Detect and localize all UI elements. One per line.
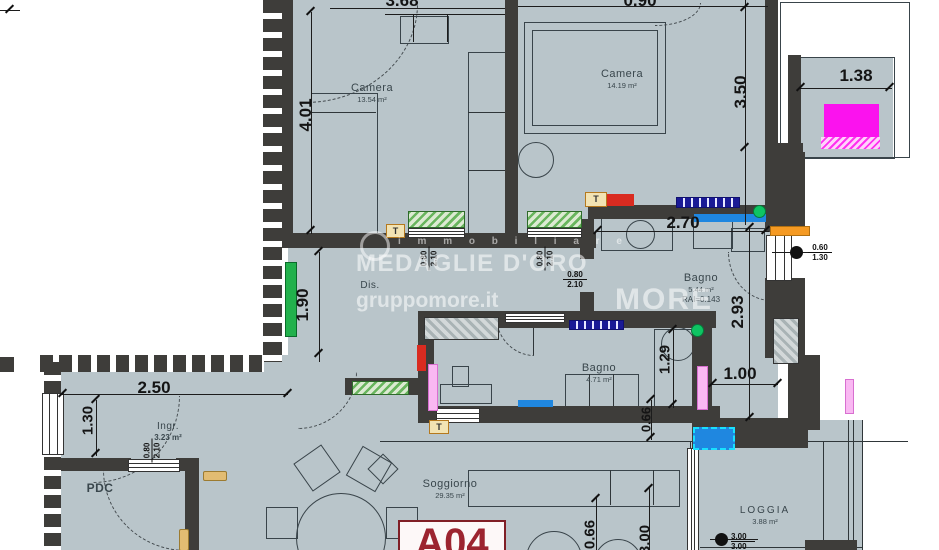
room-loggia: LOGGIA 3.88 m² — [715, 505, 815, 526]
room-ingresso: Ingr. 3.23 m² — [118, 421, 218, 442]
cyan-dashed-panel — [693, 427, 735, 450]
loggia-rail-left — [687, 448, 699, 550]
sideboard-divider2 — [653, 470, 654, 505]
dim-camera1-height: 4.01 — [296, 90, 316, 140]
dim-tick-a — [413, 14, 414, 42]
radiator-pdc — [179, 529, 189, 550]
loggia-rail-right1 — [848, 420, 849, 550]
dashed-wall-vertical — [263, 0, 282, 362]
thermostat-label: T — [593, 194, 599, 204]
dim-loggia-point: 3.00 3.00 — [731, 532, 755, 550]
sink-bagno2 — [452, 366, 469, 387]
pink-bar-right — [845, 379, 854, 414]
room-soggiorno-area: 29.35 m² — [400, 491, 500, 500]
floor-plan: T T T — [0, 0, 939, 550]
dim-bagno1-width: 2.70 — [648, 213, 718, 233]
red-bar-horizontal — [607, 194, 634, 206]
thermostat-box-3: T — [429, 420, 449, 434]
window-right-bagno1 — [766, 235, 792, 281]
terrace-line-mid — [823, 441, 824, 550]
dim-wall-gap: 0.66 — [639, 398, 654, 442]
dim-window-right-h: 1.30 — [808, 253, 832, 262]
wall-left-stub — [0, 357, 14, 372]
room-ingresso-area: 3.23 m² — [118, 433, 218, 442]
window-left-ingresso — [42, 393, 64, 455]
dim-line-190 — [319, 252, 320, 362]
watermark-site: gruppomore.it — [356, 289, 498, 313]
green-dot-mid — [691, 324, 704, 337]
hatch-shower-dis — [424, 317, 499, 340]
room-camera1: Camera 13.54 m² — [322, 82, 422, 104]
navy-hatch-bar-top — [676, 197, 740, 208]
navy-hatch-bar-mid — [569, 320, 624, 330]
sideboard-divider1 — [610, 470, 611, 505]
chair-camera2 — [518, 142, 554, 178]
loggia-rail-right2 — [853, 420, 854, 550]
window-camera1-south — [408, 211, 465, 228]
dim-loggia-b: 3.00 — [731, 542, 755, 550]
magenta-hatch-strip — [821, 137, 880, 149]
radiator-ingresso — [203, 471, 227, 481]
watermark-small-line: i m m o b i l i a r e — [398, 236, 629, 247]
dim-top-left: 3.68 — [377, 0, 427, 11]
wardrobe-divider1 — [468, 112, 506, 113]
watermark-brand: MEDAGLIE D'ORO — [356, 250, 588, 278]
dim-window-right-w: 0.60 — [808, 243, 832, 253]
room-loggia-area: 3.88 m² — [715, 517, 815, 526]
room-camera1-name: Camera — [322, 82, 422, 94]
room-camera2-name: Camera — [572, 68, 672, 80]
bed-camera1-line — [311, 112, 376, 113]
door-spec-4: 0.80 2.10 — [143, 439, 162, 463]
window-dis-south — [352, 381, 409, 395]
dim-loggia-a: 3.00 — [731, 532, 755, 542]
dim-ingresso-height: 1.30 — [80, 396, 97, 446]
room-camera2-area: 14.19 m² — [572, 81, 672, 90]
room-bagno2-name: Bagno — [549, 362, 649, 374]
dim-line-100 — [712, 384, 778, 385]
room-pdc-name: PDC — [70, 481, 130, 495]
dim-line-topleft2 — [385, 14, 505, 15]
loggia-edge-right — [862, 420, 863, 550]
pink-bar-bagno2 — [428, 364, 438, 411]
sink-unit-bagno2 — [440, 384, 492, 404]
bed-camera1 — [311, 93, 378, 237]
loggia-dot — [715, 533, 728, 546]
dim-balcony-width: 1.38 — [826, 66, 886, 86]
room-bagno2: Bagno 4.71 m² — [549, 362, 649, 384]
thermostat-label: T — [436, 422, 442, 432]
dim-bottom-gap1: 0.66 — [582, 510, 599, 550]
dim-corridor-width: 1.00 — [710, 364, 770, 384]
room-soggiorno: Soggiorno 29.35 m² — [400, 478, 500, 500]
hatch-right-wall — [773, 318, 799, 364]
dashed-wall-left-edge — [44, 362, 61, 550]
thermostat-box-1: T — [585, 192, 607, 207]
wall-bottom-right-stub — [805, 540, 857, 550]
wall-pdc-north-a — [55, 458, 131, 471]
room-camera2: Camera 14.19 m² — [572, 68, 672, 90]
unit-label-box: A04 — [398, 520, 506, 550]
dim-bagno2-height: 1.29 — [657, 335, 674, 385]
dim-camera2-height: 3.50 — [731, 67, 751, 117]
wall-between-cameras — [505, 0, 518, 233]
room-pdc: PDC — [70, 481, 130, 495]
dim-line-138 — [800, 88, 892, 89]
room-camera1-area: 13.54 m² — [322, 95, 422, 104]
thermostat-label: T — [393, 226, 399, 236]
dim-ingresso-width: 2.50 — [124, 378, 184, 398]
orange-bar — [770, 226, 810, 236]
window-dot-right — [790, 246, 803, 259]
dim-line-293 — [749, 228, 750, 420]
unit-label: A04 — [415, 521, 488, 550]
dim-top-right: 0.90 — [615, 0, 665, 11]
wall-right-mid-a — [765, 152, 805, 232]
room-bagno2-area: 4.71 m² — [549, 375, 649, 384]
wall-right-top — [765, 0, 778, 152]
nightstand-camera1 — [400, 16, 449, 44]
dim-window-right: 0.60 1.30 — [808, 243, 832, 262]
window-camera2-south — [527, 211, 582, 228]
dining-chair-3 — [266, 507, 298, 539]
red-bar-vertical — [417, 345, 426, 371]
window-bagno2-north — [505, 313, 565, 323]
pink-bar-corridor — [697, 366, 708, 410]
room-loggia-name: LOGGIA — [715, 505, 815, 516]
dim-bottom-gap2: 3.00 — [637, 515, 654, 550]
dim-tick-b — [447, 14, 448, 42]
dim-line-corner — [0, 10, 20, 11]
blue-bar-bagno2 — [518, 400, 553, 407]
watermark-more-logo: MORE — [615, 283, 713, 317]
dim-dis-height: 1.90 — [293, 280, 313, 330]
green-dot-top — [753, 205, 766, 218]
wardrobe-divider2 — [468, 170, 506, 171]
room-soggiorno-name: Soggiorno — [400, 478, 500, 490]
wardrobe-camera1 — [468, 52, 508, 237]
room-ingresso-name: Ingr. — [118, 421, 218, 432]
magenta-panel — [824, 104, 879, 137]
dashed-wall-horizontal — [40, 355, 264, 372]
